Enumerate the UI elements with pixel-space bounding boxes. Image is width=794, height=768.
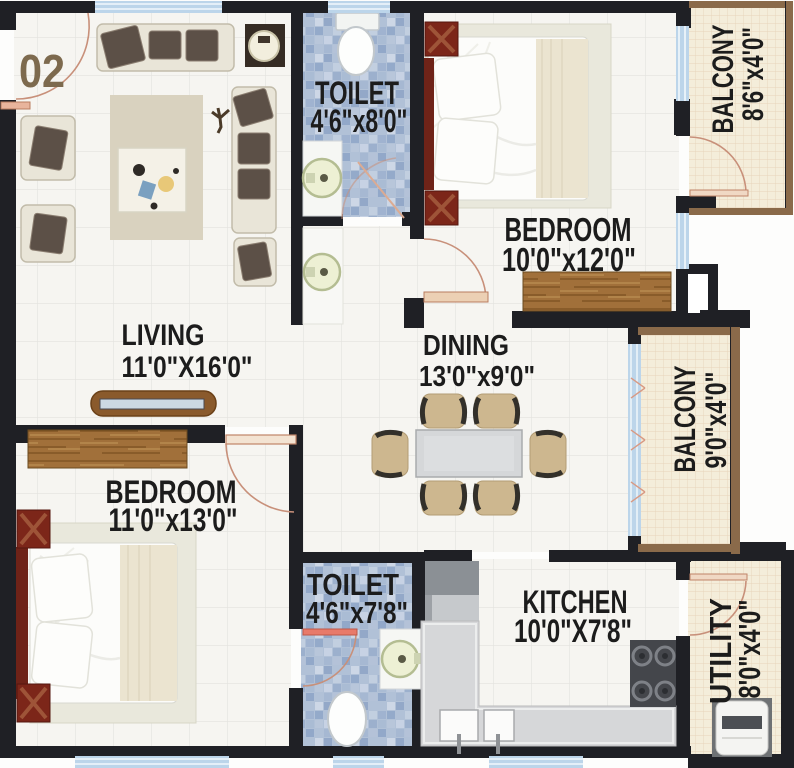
svg-text:4'6"x7'8": 4'6"x7'8" [306, 595, 408, 630]
svg-text:11'0"x13'0": 11'0"x13'0" [109, 502, 238, 538]
svg-text:DINING: DINING [423, 330, 509, 362]
svg-text:10'0"x12'0": 10'0"x12'0" [502, 241, 636, 278]
svg-text:LIVING: LIVING [122, 319, 205, 352]
svg-text:11'0"X16'0": 11'0"X16'0" [122, 351, 253, 384]
svg-text:4'6"x8'0": 4'6"x8'0" [311, 103, 408, 139]
svg-text:10'0"X7'8": 10'0"X7'8" [514, 613, 632, 649]
svg-text:02: 02 [19, 45, 65, 97]
svg-text:8'0"x4'0": 8'0"x4'0" [732, 600, 767, 699]
svg-text:9'0"x4'0": 9'0"x4'0" [700, 372, 733, 469]
svg-text:BALCONY: BALCONY [707, 25, 740, 134]
svg-text:8'6"x4'0": 8'6"x4'0" [737, 27, 770, 121]
svg-text:BALCONY: BALCONY [669, 366, 702, 473]
svg-text:13'0"x9'0": 13'0"x9'0" [419, 361, 535, 393]
